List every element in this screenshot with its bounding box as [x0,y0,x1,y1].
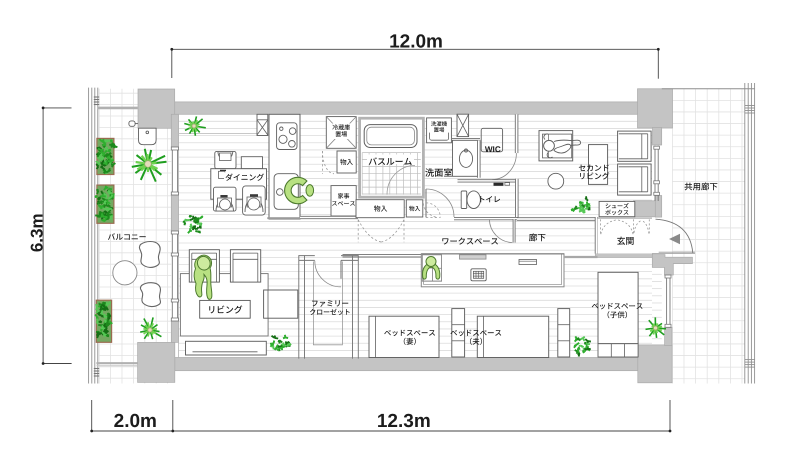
svg-text:2.0m: 2.0m [114,411,157,432]
svg-text:12.3m: 12.3m [377,411,431,432]
svg-text:12.0m: 12.0m [389,32,443,53]
svg-text:6.3m: 6.3m [28,213,47,252]
svg-text:WIC: WIC [485,145,501,154]
